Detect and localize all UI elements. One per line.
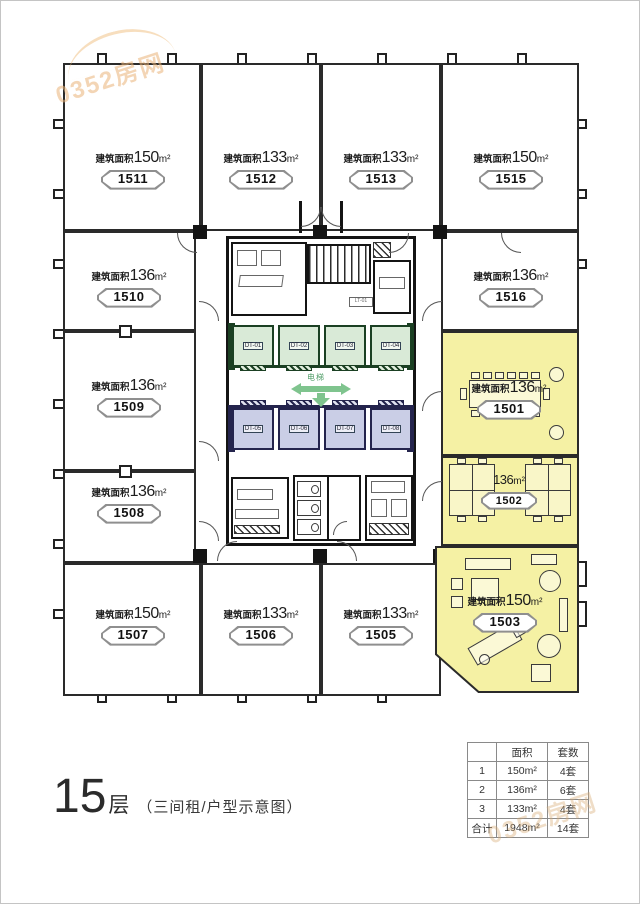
area-text: 136m² [461,471,557,489]
unit-label-1513: 建筑面积133m² 1513 [321,149,441,190]
shaft-label-box [391,499,407,517]
floor-number: 15 [53,773,106,821]
chair [478,458,487,464]
area-unit: m² [407,154,419,165]
area-value: 133 [262,605,287,622]
area-prefix: 建筑面积 [92,272,130,283]
area-value: 136 [512,267,537,284]
door-swing [199,441,219,461]
chair [495,372,504,379]
area-value: 150 [134,605,159,622]
area-text: 建筑面积136m² [449,379,569,397]
badge-number: 1501 [479,402,539,418]
area-prefix: 建筑面积 [92,488,130,499]
stool [531,664,551,682]
elevator-id: DT-03 [335,342,355,350]
elevator-id: DT-06 [289,425,309,433]
area-unit: m² [155,488,167,499]
unit-badge: 1503 [473,613,537,633]
elevator-id: DT-08 [381,425,401,433]
badge-number: 1508 [99,506,159,522]
door-swing [199,301,219,321]
area-value: 136 [493,472,513,487]
elevator-door [286,365,312,371]
unit-badge: 1506 [229,626,293,646]
armchair [451,578,463,590]
cell: 1 [468,762,497,781]
elevator-door [240,365,266,371]
area-unit: m² [155,382,167,393]
unit-room-1512 [201,63,321,231]
area-value: 133 [382,149,407,166]
cabinet [531,554,557,565]
shaft-label-box [261,250,281,266]
badge-number: 1516 [481,290,541,306]
shaft-label-box [237,250,257,266]
unit-badge: 1516 [479,288,543,308]
area-prefix: 建筑面积 [474,154,512,165]
unit-badge: 1508 [97,504,161,524]
area-prefix: 建筑面积 [224,154,262,165]
area-text: 建筑面积136m² [69,267,189,285]
elevator-shaft: DT-06 [278,408,320,450]
elevator-door [378,400,404,406]
door-swing [199,521,219,541]
elevator-id: DT-04 [381,342,401,350]
area-value: 136 [130,483,155,500]
unit-badge: 1515 [479,170,543,190]
area-value: 150 [134,149,159,166]
badge-number: 1505 [351,628,411,644]
elevator-door [240,400,266,406]
plant [537,634,561,658]
area-value: 133 [382,605,407,622]
chair [457,516,466,522]
unit-badge: 1501 [477,400,541,420]
table-header-row: 面积 套数 [468,743,589,762]
elevator-shaft: DT-02 [278,325,320,367]
chair [533,516,542,522]
area-unit: m² [287,154,299,165]
area-unit: m² [535,384,547,395]
unit-badge: 1512 [229,170,293,190]
door-swing [422,301,442,321]
chair [471,372,480,379]
header-blank [468,743,497,762]
area-unit: m² [287,610,299,621]
badge-number: 1506 [231,628,291,644]
area-prefix: 建筑面积 [344,610,382,621]
floor-unit: 层 [108,789,129,819]
shaft-label-box [235,509,279,519]
shaft-label-box [371,481,405,493]
shaft-hatch [234,525,280,534]
toilet-stall [297,519,321,535]
unit-badge: 1510 [97,288,161,308]
chair [507,372,516,379]
stairwell [307,244,371,284]
unit-badge: 1507 [101,626,165,646]
area-prefix: 建筑面积 [96,154,134,165]
badge-number: 1515 [481,172,541,188]
cell: 136m² [497,781,548,800]
elevator-id: DT-05 [243,425,263,433]
cell: 2 [468,781,497,800]
badge-number: 1512 [231,172,291,188]
office-chair [479,654,490,665]
floor-subtitle: （三间租/户型示意图） [137,796,302,817]
elevator-id: DT-02 [289,342,309,350]
area-text: 建筑面积133m² [321,605,441,623]
shaft-label-box [371,499,387,517]
unit-badge: 1511 [101,170,165,190]
area-text: 建筑面积150m² [451,149,571,167]
cell: 4套 [548,762,589,781]
unit-label-1506: 建筑面积133m² 1506 [201,605,321,646]
area-unit: m² [159,610,171,621]
unit-label-1516: 建筑面积136m² 1516 [451,267,571,308]
partition-wall [327,477,329,539]
unit-badge: 1505 [349,626,413,646]
unit-room-1513 [321,63,441,231]
area-text: 建筑面积133m² [201,149,321,167]
badge-number: 1510 [99,290,159,306]
area-text: 建筑面积150m² [73,605,193,623]
elevator-shaft: DT-05 [232,408,274,450]
unit-label-1511: 建筑面积150m² 1511 [73,149,193,190]
unit-badge: 1502 [481,492,537,510]
chair [531,372,540,379]
badge-number: 1509 [99,400,159,416]
chair [554,458,563,464]
toilet [311,523,319,532]
chair [519,372,528,379]
door-swing [422,481,442,501]
unit-room-1515 [441,63,579,231]
shaft-label-box [237,489,273,500]
unit-room-1503: 建筑面积150m² 1503 [435,546,579,693]
chair [478,516,487,522]
wall-column [119,465,132,478]
shaft-hatch [369,523,409,535]
area-text: 建筑面积133m² [201,605,321,623]
area-unit: m² [531,597,543,608]
unit-label-1509: 建筑面积136m² 1509 [69,377,189,418]
elevator-shaft: DT-03 [324,325,366,367]
elevator-id: DT-01 [243,342,263,350]
badge-number: 1502 [483,494,535,508]
unit-label-1502: 136m² 1502 [461,471,557,510]
unit-label-1515: 建筑面积150m² 1515 [451,149,571,190]
elevator-shaft: DT-04 [370,325,412,367]
unit-label-1510: 建筑面积136m² 1510 [69,267,189,308]
table-row: 1 150m² 4套 [468,762,589,781]
unit-badge: 1509 [97,398,161,418]
chair [457,458,466,464]
area-value: 136 [510,379,535,396]
door-swing [217,541,237,561]
toilet [311,504,319,513]
badge-number: 1513 [351,172,411,188]
unit-label-1507: 建筑面积150m² 1507 [73,605,193,646]
area-value: 136 [130,267,155,284]
unit-badge: 1513 [349,170,413,190]
unit-label-1508: 建筑面积136m² 1508 [69,483,189,524]
area-prefix: 建筑面积 [474,272,512,283]
toilet [311,485,319,494]
area-text: 建筑面积136m² [451,267,571,285]
wall-column [119,325,132,338]
area-text: 建筑面积136m² [69,377,189,395]
elevator-direction-arrows [289,381,353,407]
toilet-stall [297,481,321,497]
cell: 150m² [497,762,548,781]
badge-number: 1507 [103,628,163,644]
shaft-label-box [379,277,405,289]
area-value: 150 [512,149,537,166]
chair [483,372,492,379]
shaft-label-box [238,275,284,287]
area-prefix: 建筑面积 [472,384,510,395]
area-prefix: 建筑面积 [96,610,134,621]
area-text: 建筑面积150m² [73,149,193,167]
area-unit: m² [159,154,171,165]
door-swing [422,391,442,411]
elevator-hall-label: 电梯 [307,372,325,383]
area-value: 150 [506,592,531,609]
floorplan-page: 建筑面积150m² 1503 LT-01 DT-01 DT-02 DT-03 D… [0,0,640,904]
area-unit: m² [513,476,525,487]
unit-label-1501: 建筑面积136m² 1501 [449,379,569,420]
area-prefix: 建筑面积 [224,610,262,621]
elevator-id: DT-07 [335,425,355,433]
junction-column [193,549,207,563]
elevator-shaft: DT-07 [324,408,366,450]
area-prefix: 建筑面积 [92,382,130,393]
plant [549,425,564,440]
junction-column [313,549,327,563]
sofa [465,558,511,570]
area-prefix: 建筑面积 [344,154,382,165]
area-value: 133 [262,149,287,166]
chair [554,516,563,522]
unit-label-1503: 建筑面积150m² 1503 [441,592,569,633]
badge-number: 1511 [103,172,163,188]
elevator-shaft: DT-08 [370,408,412,450]
unit-label-1512: 建筑面积133m² 1512 [201,149,321,190]
area-prefix: 建筑面积 [468,597,506,608]
area-unit: m² [407,610,419,621]
area-unit: m² [537,154,549,165]
elevator-shaft: DT-01 [232,325,274,367]
area-text: 建筑面积150m² [441,592,569,610]
area-unit: m² [537,272,549,283]
junction-column [433,225,447,239]
header-count: 套数 [548,743,589,762]
floor-title: 15 层 （三间租/户型示意图） [53,773,303,821]
chair [533,458,542,464]
elevator-door [378,365,404,371]
area-unit: m² [155,272,167,283]
header-area: 面积 [497,743,548,762]
toilet-stall [297,500,321,516]
area-text: 建筑面积136m² [69,483,189,501]
stair-label: LT-01 [349,297,373,307]
badge-number: 1503 [475,615,535,631]
elevator-door [332,365,358,371]
plant [539,570,561,592]
unit-label-1505: 建筑面积133m² 1505 [321,605,441,646]
area-value: 136 [130,377,155,394]
area-text: 建筑面积133m² [321,149,441,167]
